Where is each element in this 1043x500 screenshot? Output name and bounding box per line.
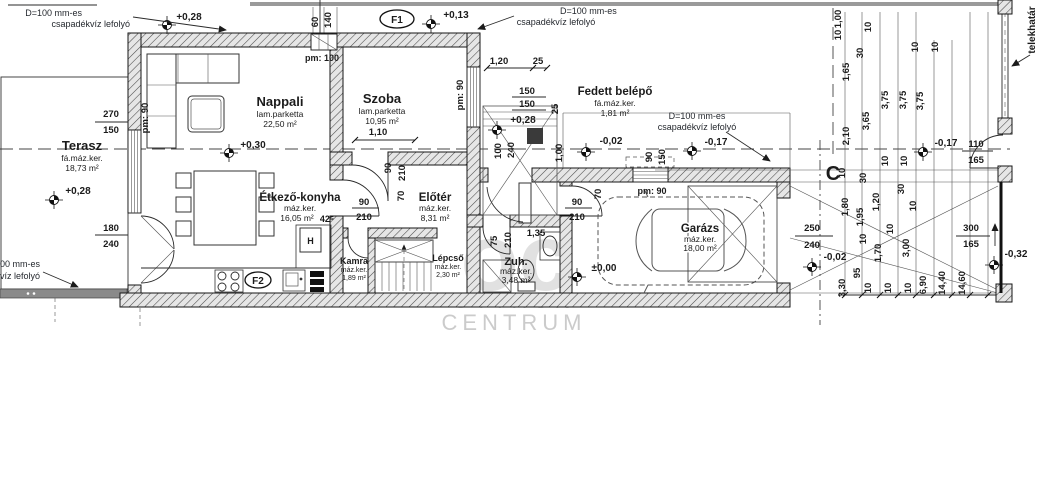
level-porch: -0,02 <box>600 136 623 147</box>
dim-garage-window-h: 150 <box>657 149 668 165</box>
drain-bl-1: D=100 mm-es <box>0 259 40 269</box>
chain-top-10: 10 <box>910 42 921 53</box>
level-eave: +0,28 <box>176 12 202 23</box>
szoba-name: Szoba <box>363 91 402 106</box>
zuh-area: 3,48 m² <box>502 275 531 285</box>
floorplan-drawing: oc OTTHON CENTRUM <box>0 0 1043 500</box>
chain-top-13: 10 <box>899 156 910 167</box>
dim-shower-door-w: 75 <box>489 235 500 246</box>
dim-szoba-window-a: 1,20 <box>490 56 509 67</box>
chain-bottom-4: 6,90 <box>918 276 929 295</box>
dim-street-gate-w: 300 <box>963 223 979 234</box>
szoba-area: 10,95 m² <box>365 116 399 126</box>
drain-g-2: csapadékvíz lefolyó <box>658 122 737 132</box>
chain-bottom-6: 14,60 <box>957 271 968 295</box>
terasz-finish: fá.máz.ker. <box>61 153 103 163</box>
chain-top-0: 1,00 <box>833 10 844 29</box>
chain-top-2: 1,65 <box>841 62 852 81</box>
dim-vent-h: 140 <box>323 12 334 28</box>
fedett-name: Fedett belépő <box>578 86 653 98</box>
chain-bottom-1: 10 <box>863 283 874 294</box>
dim-front-door-b: 25 <box>550 103 561 114</box>
dim-front-door-h: 240 <box>506 142 517 158</box>
level-street: -0,32 <box>1005 249 1028 260</box>
stairs <box>375 240 433 291</box>
chain-drive-6: 95 <box>852 267 863 278</box>
level-gate: -0,17 <box>935 138 958 149</box>
dim-szoba-door-w: 90 <box>383 163 394 174</box>
dim-terrace-window-h: 150 <box>103 125 119 136</box>
section-c-label: C <box>826 163 840 185</box>
chain-top-4: 30 <box>855 48 866 59</box>
chain-drive-7: 10 <box>885 224 896 235</box>
etkezo-note: 42⁵ <box>320 214 334 224</box>
fedett-area: 1,81 m² <box>601 108 630 118</box>
level-drive: -0,02 <box>824 252 847 263</box>
dim-street-gate-h: 165 <box>963 239 980 250</box>
drain-tc-2: csapadékvíz lefolyó <box>517 17 596 27</box>
level-garage: ±0,00 <box>592 263 617 274</box>
lepcso-finish: máz.ker. <box>435 264 462 271</box>
chain-drive-10: 3,00 <box>901 239 912 258</box>
f2-label: F2 <box>252 276 264 287</box>
porch-column <box>527 128 543 144</box>
dim-terrace-door-w: 180 <box>103 223 119 234</box>
lepcso-area: 2,30 m² <box>436 272 460 279</box>
chain-drive-4: 10 <box>858 234 869 245</box>
pm-nappali: pm: 100 <box>305 53 339 63</box>
coffee-table <box>188 96 224 132</box>
terasz-name: Terasz <box>62 138 103 153</box>
dim-szoba-door-off: 1,10 <box>369 127 388 138</box>
terrace-double-door <box>141 216 174 283</box>
chain-top-12: 10 <box>880 156 891 167</box>
lepcso-name: Lépcső <box>432 253 464 263</box>
dim-vent-w: 60 <box>310 17 321 28</box>
chain-bottom-0: 3,30 <box>837 279 848 298</box>
dim-kitchen-door-w: 90 <box>359 197 370 208</box>
chain-top-1: 10 <box>833 30 844 41</box>
dim-terrace-window-w: 270 <box>103 109 119 120</box>
dim-gate-door-h: 165 <box>968 155 985 166</box>
fedett-finish: fá.máz.ker. <box>594 98 636 108</box>
dim-kitchen-door-h: 210 <box>356 212 372 223</box>
floorplan-canvas: oc OTTHON CENTRUM <box>0 0 1043 500</box>
chain-top-8: 3,75 <box>898 90 909 109</box>
etkezo-finish: máz.ker. <box>284 203 316 213</box>
pm-garage-window: pm: 90 <box>637 186 666 196</box>
kamra-door <box>348 238 368 258</box>
dim-szoba-door-h: 210 <box>397 165 408 181</box>
kamra-area: 1,89 m² <box>342 275 366 282</box>
dim-garage-door-off: 70 <box>593 189 604 200</box>
dim-garage-door-w: 90 <box>572 197 583 208</box>
chain-drive-3: 30 <box>858 173 869 184</box>
nappali-area: 22,50 m² <box>263 119 297 129</box>
pm-szoba-window: pm: 90 <box>455 80 466 111</box>
chain-top-5: 10 <box>863 22 874 33</box>
etkezo-area: 16,05 m² <box>280 213 314 223</box>
dim-garage-door-h: 210 <box>569 212 585 223</box>
pm-terrace-window: pm: 90 <box>140 103 151 134</box>
appliance-bars <box>310 271 324 277</box>
room-terasz: Terasz fá.máz.ker. 18,73 m² <box>61 138 103 173</box>
chain-top-7: 3,75 <box>880 90 891 109</box>
dim-garage-window-w: 90 <box>644 152 655 163</box>
level-entry: +0,28 <box>510 115 536 126</box>
kitchen-sink <box>283 270 305 291</box>
level-szoba-roof: +0,13 <box>443 10 469 21</box>
terrace-window <box>128 130 141 213</box>
chain-drive-5: 1,70 <box>873 244 884 263</box>
chain-drive-9: 10 <box>908 201 919 212</box>
dim-szoba-window-h: 150 <box>519 99 535 110</box>
chain-bottom-2: 10 <box>883 283 894 294</box>
drain-note-garage: D=100 mm-es csapadékvíz lefolyó <box>658 111 770 161</box>
dim-szoba-window-w: 150 <box>519 86 535 97</box>
eloter-area: 8,31 m² <box>421 213 450 223</box>
dim-szoba-window-b: 25 <box>533 56 544 67</box>
room-szoba: Szoba lam.parketta 10,95 m² <box>359 91 406 126</box>
chimney-vent <box>311 34 337 50</box>
level-nappali: +0,30 <box>240 140 266 151</box>
level-porch-corner: -0,17 <box>705 137 728 148</box>
chain-drive-2: 1,20 <box>871 193 882 212</box>
terrace <box>0 77 140 326</box>
fridge-label: H <box>307 236 314 246</box>
dim-terrace-door-h: 240 <box>103 239 119 250</box>
nappali-name: Nappali <box>257 94 304 109</box>
eloter-finish: máz.ker. <box>419 203 451 213</box>
watermark-line2: CENTRUM <box>442 310 587 335</box>
dim-garage-gate-w: 250 <box>804 223 820 234</box>
roof-eave-band <box>250 2 1005 6</box>
nappali-finish: lam.parketta <box>257 109 304 119</box>
drain-bl-2: csapadékvíz lefolyó <box>0 271 40 281</box>
szoba-east-window <box>467 67 480 127</box>
room-zuh: Zuh. máz.ker. 3,48 m² <box>500 256 532 285</box>
drain-note-bottom-left: D=100 mm-es csapadékvíz lefolyó <box>0 259 78 287</box>
room-eloter: Előtér máz.ker. 8,31 m² <box>419 192 452 223</box>
szoba-finish: lam.parketta <box>359 106 406 116</box>
dim-shower-door-h: 210 <box>503 232 514 248</box>
dim-front-door-w: 100 <box>493 143 504 159</box>
drain-note-top-center: D=100 mm-es csapadékvíz lefolyó <box>478 6 617 29</box>
level-terasz: +0,28 <box>65 186 91 197</box>
dim-shower-door-off: 1,35 <box>527 228 546 239</box>
dim-garage-gate-h: 240 <box>804 240 820 251</box>
room-lepcso: Lépcső máz.ker. 2,30 m² <box>432 253 464 279</box>
chain-top-3: 2,10 <box>841 127 852 146</box>
dim-kitchen-door-off: 70 <box>396 191 407 202</box>
terasz-area: 18,73 m² <box>65 163 99 173</box>
dining-table <box>176 171 274 245</box>
chain-drive-1: 1,95 <box>855 207 866 226</box>
room-kamra: Kamra máz.ker. 1,89 m² <box>340 256 369 282</box>
chain-drive-8: 30 <box>896 184 907 195</box>
garazs-area: 18,00 m² <box>683 243 717 253</box>
chain-top-9: 3,75 <box>915 91 926 110</box>
stove <box>215 270 243 292</box>
dim-front-door-a: 1,00 <box>554 144 565 163</box>
chain-bottom-5: 14,40 <box>937 271 948 295</box>
drain-tc-1: D=100 mm-es <box>560 6 617 16</box>
kamra-finish: máz.ker. <box>341 267 368 274</box>
drain-g-1: D=100 mm-es <box>669 111 726 121</box>
drain-tl-2: csapadékvíz lefolyó <box>51 19 130 29</box>
f1-label: F1 <box>391 15 403 26</box>
chain-top-11: 10 <box>930 42 941 53</box>
telekhatar-label: telekhatár <box>1027 6 1038 53</box>
room-nappali: Nappali lam.parketta 22,50 m² <box>257 94 304 129</box>
room-garazs: Garázs máz.ker. 18,00 m² <box>681 223 719 253</box>
kamra-name: Kamra <box>340 256 369 266</box>
chain-top-6: 3,65 <box>861 111 872 130</box>
drain-tl-1: D=100 mm-es <box>25 8 82 18</box>
dimension-chains: 1,00 10 1,65 2,10 30 10 3,65 3,75 3,75 3… <box>833 10 968 298</box>
chain-bottom-3: 10 <box>903 283 914 294</box>
chain-drive-0: 1,80 <box>840 198 851 217</box>
dim-gate-door-w: 110 <box>968 139 983 150</box>
